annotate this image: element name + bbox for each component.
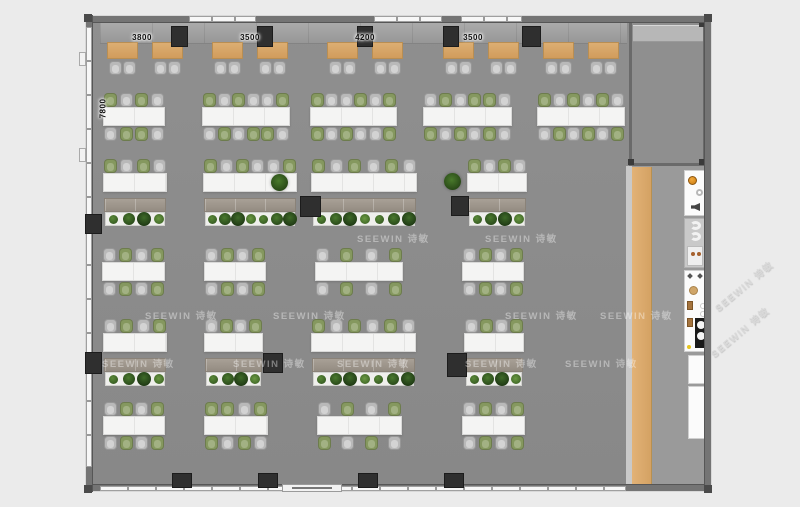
room-corner-post (628, 159, 634, 165)
chair (385, 159, 398, 173)
control-panel-fixture (684, 170, 706, 216)
chair (168, 61, 181, 75)
chair (483, 93, 496, 107)
planter-box (313, 212, 415, 226)
chair (238, 402, 251, 416)
chair (104, 436, 117, 450)
plant (374, 375, 383, 384)
faucet-icon (697, 273, 703, 279)
chair (204, 159, 217, 173)
appliance-icon (687, 318, 693, 327)
chair (312, 319, 325, 333)
plant (109, 215, 118, 224)
chair (252, 282, 265, 296)
dimension-label: 3500 (230, 33, 270, 42)
chair (254, 436, 267, 450)
chair (153, 319, 166, 333)
chair (247, 93, 260, 107)
chair (495, 319, 508, 333)
chair (463, 402, 476, 416)
chair (354, 127, 367, 141)
chair (459, 61, 472, 75)
chair (479, 402, 492, 416)
window (374, 16, 442, 22)
wall-junction-tab (79, 52, 86, 66)
structural-column (258, 473, 278, 488)
chair (495, 402, 508, 416)
storage-cabinet (104, 358, 166, 372)
plant (485, 213, 497, 225)
plant (343, 212, 357, 226)
chair (383, 127, 396, 141)
chair (510, 248, 523, 262)
chair (494, 282, 507, 296)
planter-box (466, 372, 522, 386)
storage-cabinet (104, 198, 166, 212)
storage-cabinet (465, 358, 523, 372)
plant (109, 375, 118, 384)
structural-column (172, 473, 192, 488)
chair (135, 127, 148, 141)
desk-table (103, 333, 167, 352)
chair (329, 61, 342, 75)
chair (318, 402, 331, 416)
chair (340, 282, 353, 296)
chair (247, 127, 260, 141)
plant (360, 214, 370, 224)
chair (479, 248, 492, 262)
chair (369, 93, 382, 107)
structural-column (85, 352, 102, 374)
chair (120, 319, 133, 333)
yellow-dot-icon (687, 345, 691, 349)
chair (273, 61, 286, 75)
desk-table (311, 173, 417, 192)
chair (367, 159, 380, 173)
structural-column (358, 473, 378, 488)
chair (135, 402, 148, 416)
chair (465, 319, 478, 333)
chair (559, 61, 572, 75)
chair (582, 127, 595, 141)
chair (103, 248, 116, 262)
desk-table (464, 333, 524, 352)
chair (354, 93, 367, 107)
chair (232, 127, 245, 141)
structural-column (451, 196, 469, 216)
structural-column (300, 196, 321, 217)
chair (154, 61, 167, 75)
chair (445, 61, 458, 75)
entry-door-leaf (292, 487, 332, 489)
chair (205, 248, 218, 262)
structural-column (444, 473, 464, 488)
chair (348, 319, 361, 333)
chair (120, 127, 133, 141)
plant (330, 213, 342, 225)
toilet-icon (690, 221, 701, 230)
cluster-table (202, 107, 290, 126)
chair (251, 159, 264, 173)
wc-fixture (684, 218, 706, 268)
window (461, 16, 522, 22)
plant (317, 375, 326, 384)
chair (513, 159, 526, 173)
toilet-icon (690, 232, 701, 241)
training-desk (212, 42, 243, 59)
planter-box (105, 372, 165, 386)
chair (366, 319, 379, 333)
chair (220, 319, 233, 333)
chair (203, 93, 216, 107)
plant (222, 373, 234, 385)
chair (135, 93, 148, 107)
chair (596, 127, 609, 141)
planter-box (105, 212, 165, 226)
plant (231, 212, 245, 226)
cluster-table (102, 262, 165, 281)
chair (259, 61, 272, 75)
chair (388, 402, 401, 416)
chair (388, 61, 401, 75)
chair (389, 282, 402, 296)
cluster-table (310, 107, 397, 126)
plant (234, 372, 248, 386)
partition-wall (626, 166, 632, 492)
chair (236, 159, 249, 173)
chair (424, 127, 437, 141)
chair (325, 93, 338, 107)
cluster-table (204, 262, 266, 281)
structural-column (85, 214, 102, 234)
plant (283, 212, 297, 226)
plant (123, 213, 135, 225)
tap-icon (691, 252, 695, 256)
plant (154, 374, 164, 384)
chair (151, 436, 164, 450)
chair (135, 282, 148, 296)
cluster-table (103, 107, 165, 126)
chair (463, 282, 476, 296)
chair (276, 93, 289, 107)
chair (454, 93, 467, 107)
plant (495, 372, 509, 386)
planter-box (313, 372, 414, 386)
chair (510, 282, 523, 296)
desk-table (467, 173, 527, 192)
chair (151, 127, 164, 141)
storage-cabinet (312, 198, 416, 212)
chair (123, 61, 136, 75)
plant (388, 213, 400, 225)
chair (454, 127, 467, 141)
chair (504, 61, 517, 75)
chair (311, 127, 324, 141)
chair (388, 436, 401, 450)
cluster-table (537, 107, 625, 126)
plant (511, 374, 521, 384)
chair (203, 127, 216, 141)
chair (238, 436, 251, 450)
structural-column (522, 26, 541, 47)
chair (120, 159, 133, 173)
meeting-room-cabinet (633, 25, 703, 42)
chair (120, 93, 133, 107)
chair (151, 93, 164, 107)
cluster-table (103, 416, 165, 435)
plant (137, 372, 151, 386)
chair (463, 436, 476, 450)
chair (236, 248, 249, 262)
plant (271, 213, 283, 225)
chair (341, 402, 354, 416)
chair (553, 127, 566, 141)
dimension-label-side: 7800 (99, 94, 108, 124)
storage-cabinet (312, 358, 415, 372)
chair (483, 159, 496, 173)
tap-icon (697, 252, 701, 256)
chair (590, 61, 603, 75)
chair (341, 436, 354, 450)
corner-post (84, 14, 92, 22)
chair (316, 248, 329, 262)
chair (498, 159, 511, 173)
chair (439, 127, 452, 141)
plant (387, 373, 399, 385)
plant (123, 373, 135, 385)
chair (596, 93, 609, 107)
plant (401, 372, 415, 386)
faucet-icon (687, 273, 693, 279)
chair (104, 319, 117, 333)
plant (246, 214, 256, 224)
dimension-label: 3800 (122, 33, 162, 42)
chair (214, 61, 227, 75)
chair (611, 127, 624, 141)
chair (151, 282, 164, 296)
chair (104, 402, 117, 416)
chair (261, 127, 274, 141)
cluster-table (317, 416, 402, 435)
corner-post (704, 14, 712, 22)
chair (611, 93, 624, 107)
chair (402, 319, 415, 333)
chair (220, 159, 233, 173)
wood-feature-strip (632, 167, 652, 487)
desk-table (311, 333, 416, 352)
chair (252, 248, 265, 262)
chair (236, 282, 249, 296)
chair (104, 159, 117, 173)
plant (137, 212, 151, 226)
chair (221, 248, 234, 262)
chair (510, 319, 523, 333)
cluster-table (315, 262, 403, 281)
chair (384, 319, 397, 333)
chair (221, 436, 234, 450)
chair (463, 248, 476, 262)
desk-table (204, 333, 263, 352)
basin-icon (689, 286, 698, 295)
chair (104, 127, 117, 141)
chair (480, 319, 493, 333)
chair (228, 61, 241, 75)
wall-right (704, 15, 712, 492)
chair (325, 127, 338, 141)
structural-column (263, 353, 283, 373)
chair (221, 282, 234, 296)
speaker-icon (691, 203, 700, 211)
chair (234, 319, 247, 333)
chair (103, 282, 116, 296)
chair (511, 436, 524, 450)
plant (259, 215, 268, 224)
chair (205, 402, 218, 416)
chair (365, 402, 378, 416)
chair (369, 127, 382, 141)
chair (553, 93, 566, 107)
chair (383, 93, 396, 107)
potted-plant (444, 173, 461, 190)
plant (375, 215, 384, 224)
chair (267, 159, 280, 173)
wall-junction-tab (79, 148, 86, 162)
chair (604, 61, 617, 75)
desk-table (103, 173, 167, 192)
cluster-table (462, 416, 525, 435)
plant (514, 214, 524, 224)
chair (582, 93, 595, 107)
chair (135, 436, 148, 450)
chair (374, 61, 387, 75)
chair (120, 436, 133, 450)
chair (340, 93, 353, 107)
plant (360, 374, 370, 384)
window (86, 27, 92, 467)
planter-box (206, 372, 261, 386)
chair (137, 159, 150, 173)
chair (135, 248, 148, 262)
chair (232, 93, 245, 107)
training-desk (107, 42, 138, 59)
chair (343, 61, 356, 75)
chair (153, 159, 166, 173)
training-desk (372, 42, 403, 59)
floorplan-canvas: 38003500420035007800 SEEWIN 诗敏SEEWIN 诗敏S… (0, 0, 800, 507)
chair (261, 93, 274, 107)
chair (439, 93, 452, 107)
plant (482, 373, 494, 385)
watermark: SEEWIN 诗敏 (708, 303, 773, 360)
chair (316, 282, 329, 296)
cluster-table (204, 416, 268, 435)
chair (205, 436, 218, 450)
chair (120, 402, 133, 416)
chair (545, 61, 558, 75)
chair (221, 402, 234, 416)
chair (538, 127, 551, 141)
chair (340, 127, 353, 141)
plant (470, 375, 479, 384)
chair (538, 93, 551, 107)
cluster-table (423, 107, 512, 126)
chair (498, 127, 511, 141)
chair (254, 402, 267, 416)
chair (494, 248, 507, 262)
ring-knob-icon (696, 189, 703, 196)
chair (389, 248, 402, 262)
storage-cabinet (205, 358, 262, 372)
chair (348, 159, 361, 173)
training-desk (488, 42, 519, 59)
chair (330, 159, 343, 173)
chair (468, 93, 481, 107)
chair (137, 319, 150, 333)
plant (219, 213, 231, 225)
plant (402, 212, 416, 226)
appliance-icon (687, 301, 693, 310)
chair (283, 159, 296, 173)
chair (511, 402, 524, 416)
plant (209, 375, 218, 384)
chair (479, 282, 492, 296)
chair (567, 127, 580, 141)
plant (250, 374, 260, 384)
chair (330, 319, 343, 333)
plant (473, 215, 482, 224)
chair (151, 402, 164, 416)
plant (343, 372, 357, 386)
orange-knob-icon (688, 176, 697, 185)
chair (483, 127, 496, 141)
chair (218, 93, 231, 107)
chair (119, 248, 132, 262)
chair (498, 93, 511, 107)
chair (490, 61, 503, 75)
corner-post (704, 485, 712, 493)
dimension-label: 4200 (345, 33, 385, 42)
chair (468, 159, 481, 173)
chair (365, 282, 378, 296)
chair (479, 436, 492, 450)
chair (312, 159, 325, 173)
chair (276, 127, 289, 141)
chair (340, 248, 353, 262)
training-desk (588, 42, 619, 59)
plant (154, 214, 164, 224)
chair (318, 436, 331, 450)
sink-fixture (687, 246, 703, 266)
planter-box (205, 212, 295, 226)
structural-column (447, 353, 467, 377)
storage-cabinet (204, 198, 296, 212)
chair (205, 282, 218, 296)
plant (330, 373, 342, 385)
chair (424, 93, 437, 107)
chair (205, 319, 218, 333)
chair (567, 93, 580, 107)
storage-cabinet (468, 198, 526, 212)
chair (218, 127, 231, 141)
chair (495, 436, 508, 450)
cluster-table (462, 262, 524, 281)
dimension-label: 3500 (453, 33, 493, 42)
chair (249, 319, 262, 333)
plant (208, 215, 217, 224)
chair (365, 436, 378, 450)
chair (119, 282, 132, 296)
planter-box (469, 212, 525, 226)
